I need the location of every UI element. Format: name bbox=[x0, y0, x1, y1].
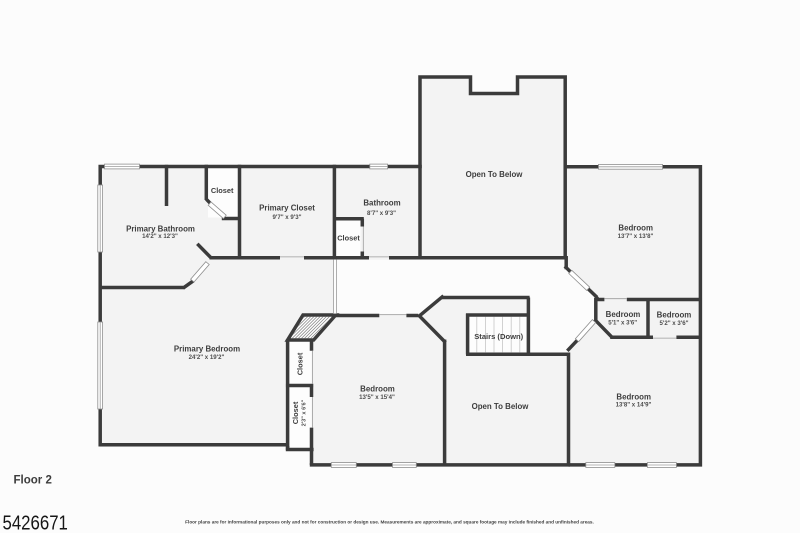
svg-text:Closet: Closet bbox=[291, 401, 300, 424]
svg-text:8'7" x 9'3": 8'7" x 9'3" bbox=[367, 210, 396, 217]
svg-text:Bedroom: Bedroom bbox=[616, 393, 651, 402]
svg-text:13'8" x 14'9": 13'8" x 14'9" bbox=[616, 402, 652, 409]
svg-text:Primary Closet: Primary Closet bbox=[259, 203, 315, 212]
svg-text:2'3" x 6'6": 2'3" x 6'6" bbox=[302, 399, 308, 426]
svg-text:5'1" x 3'6": 5'1" x 3'6" bbox=[608, 319, 637, 326]
svg-text:13'5" x 15'4": 13'5" x 15'4" bbox=[359, 394, 395, 401]
svg-text:5'2" x 3'6": 5'2" x 3'6" bbox=[659, 320, 688, 327]
svg-text:13'7" x 13'8": 13'7" x 13'8" bbox=[618, 233, 654, 240]
svg-text:Open To Below: Open To Below bbox=[466, 170, 524, 179]
svg-text:Primary Bedroom: Primary Bedroom bbox=[174, 345, 240, 354]
svg-text:5426671: 5426671 bbox=[3, 511, 68, 533]
svg-text:14'2" x 12'3": 14'2" x 12'3" bbox=[142, 233, 178, 240]
svg-text:24'2" x 19'2": 24'2" x 19'2" bbox=[189, 354, 225, 361]
svg-text:Closet: Closet bbox=[295, 352, 304, 375]
svg-text:Floor plans are for informatio: Floor plans are for informational purpos… bbox=[185, 520, 594, 525]
svg-text:Bathroom: Bathroom bbox=[363, 199, 400, 208]
svg-text:Bedroom: Bedroom bbox=[606, 310, 641, 319]
svg-text:9'7" x 9'3": 9'7" x 9'3" bbox=[272, 214, 301, 221]
svg-text:Bedroom: Bedroom bbox=[657, 310, 692, 319]
svg-text:Open To Below: Open To Below bbox=[472, 402, 530, 411]
svg-text:Floor 2: Floor 2 bbox=[14, 475, 52, 487]
svg-text:Bedroom: Bedroom bbox=[618, 223, 653, 232]
svg-text:Stairs (Down): Stairs (Down) bbox=[474, 332, 523, 341]
svg-text:Bedroom: Bedroom bbox=[360, 384, 395, 393]
svg-text:Closet: Closet bbox=[337, 234, 360, 243]
svg-text:Closet: Closet bbox=[211, 186, 234, 195]
